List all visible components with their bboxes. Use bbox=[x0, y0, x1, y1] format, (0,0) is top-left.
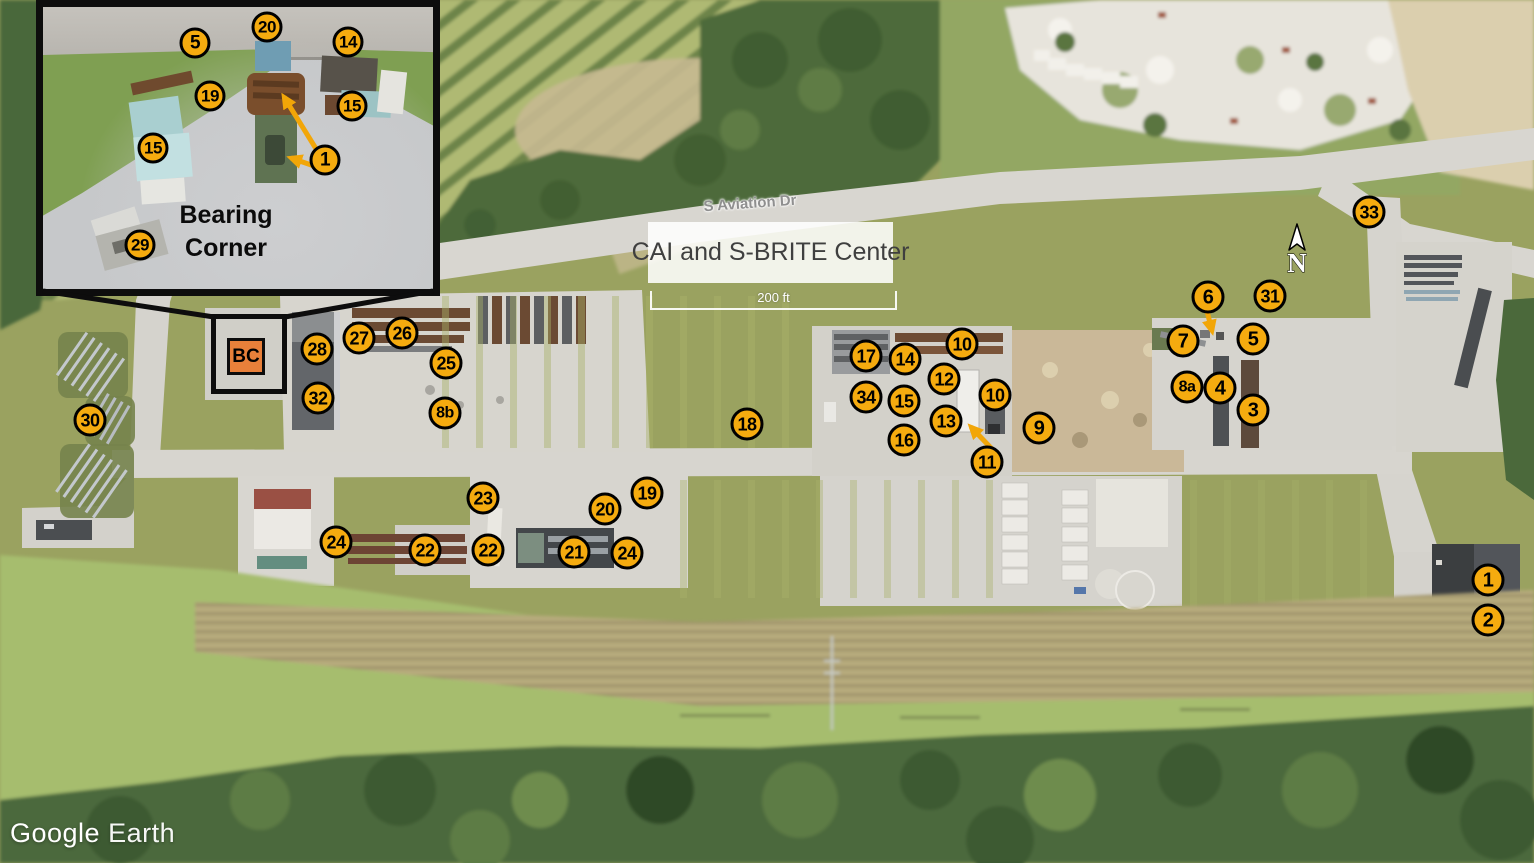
bc-label: BC bbox=[227, 338, 265, 375]
marker-31: 31 bbox=[1254, 280, 1287, 313]
marker-20: 20 bbox=[589, 493, 622, 526]
logo-earth: Earth bbox=[108, 818, 175, 848]
marker-7: 7 bbox=[1167, 325, 1200, 358]
marker-32: 32 bbox=[302, 382, 335, 415]
marker-14: 14 bbox=[333, 27, 364, 58]
marker-22: 22 bbox=[472, 534, 505, 567]
map-title-box: CAI and S-BRITE Center bbox=[648, 222, 893, 283]
marker-21: 21 bbox=[558, 536, 591, 569]
google-earth-logo: GoogleEarth bbox=[10, 818, 175, 849]
marker-10: 10 bbox=[979, 379, 1012, 412]
marker-30: 30 bbox=[74, 404, 107, 437]
marker-11: 11 bbox=[971, 446, 1004, 479]
marker-24: 24 bbox=[320, 526, 353, 559]
inset-caption-line2: Corner bbox=[139, 232, 313, 265]
marker-2: 2 bbox=[1472, 604, 1505, 637]
marker-5: 5 bbox=[1237, 323, 1270, 356]
marker-6: 6 bbox=[1192, 281, 1225, 314]
marker-8a: 8a bbox=[1171, 371, 1204, 404]
marker-19: 19 bbox=[195, 81, 226, 112]
marker-1: 1 bbox=[310, 145, 341, 176]
marker-27: 27 bbox=[343, 322, 376, 355]
marker-16: 16 bbox=[888, 424, 921, 457]
marker-15: 15 bbox=[337, 91, 368, 122]
marker-23: 23 bbox=[467, 482, 500, 515]
marker-4: 4 bbox=[1204, 372, 1237, 405]
marker-1: 1 bbox=[1472, 564, 1505, 597]
marker-12: 12 bbox=[928, 363, 961, 396]
logo-google: Google bbox=[10, 818, 100, 848]
scale-label: 200 ft bbox=[652, 290, 895, 305]
marker-20: 20 bbox=[252, 12, 283, 43]
marker-24: 24 bbox=[611, 537, 644, 570]
marker-14: 14 bbox=[889, 343, 922, 376]
inset-caption-line1: Bearing bbox=[139, 199, 313, 232]
marker-29: 29 bbox=[125, 230, 156, 261]
google-earth-canvas[interactable]: Bearing Corner BC CAI and S-BRITE Center… bbox=[0, 0, 1534, 863]
marker-28: 28 bbox=[301, 333, 334, 366]
bearing-corner-inset-photo: Bearing Corner bbox=[36, 0, 440, 296]
marker-5: 5 bbox=[180, 28, 211, 59]
marker-26: 26 bbox=[386, 317, 419, 350]
marker-18: 18 bbox=[731, 408, 764, 441]
marker-15: 15 bbox=[138, 133, 169, 164]
marker-25: 25 bbox=[430, 347, 463, 380]
marker-8b: 8b bbox=[429, 397, 462, 430]
marker-10: 10 bbox=[946, 328, 979, 361]
marker-15: 15 bbox=[888, 385, 921, 418]
map-title: CAI and S-BRITE Center bbox=[632, 238, 910, 267]
marker-9: 9 bbox=[1023, 412, 1056, 445]
marker-3: 3 bbox=[1237, 394, 1270, 427]
marker-17: 17 bbox=[850, 340, 883, 373]
marker-13: 13 bbox=[930, 405, 963, 438]
marker-22: 22 bbox=[409, 534, 442, 567]
marker-19: 19 bbox=[631, 477, 664, 510]
scale-bar: 200 ft bbox=[650, 291, 897, 310]
marker-33: 33 bbox=[1353, 196, 1386, 229]
inset-caption: Bearing Corner bbox=[139, 199, 313, 265]
marker-34: 34 bbox=[850, 381, 883, 414]
